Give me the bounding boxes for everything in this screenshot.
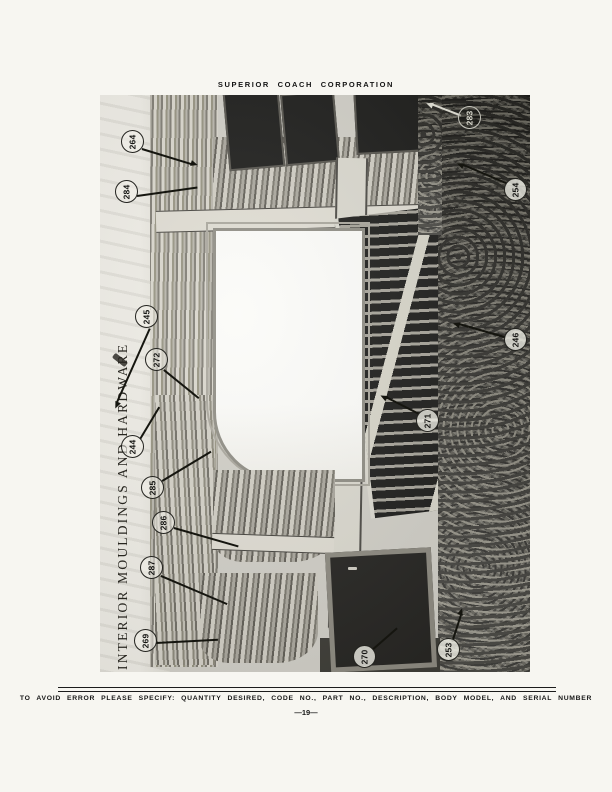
callout-number: 245 [141,309,151,324]
callout-number: 246 [510,332,520,347]
callout-circle: 246 [504,328,527,351]
callout-number: 264 [127,134,137,149]
catalog-photo: INTERIOR MOULDINGS AND HARDWARE 264 284 … [100,95,530,672]
footer-note: TO AVOID ERROR PLEASE SPECIFY: QUANTITY … [0,695,612,702]
callout-circle: 285 [141,476,164,499]
callout-number: 244 [127,439,137,454]
callout-number: 254 [510,182,520,197]
photo-vignette [100,95,530,672]
catalog-page: SUPERIOR COACH CORPORATION INTERIOR MOUL… [0,0,612,792]
callout-number: 271 [422,413,432,428]
callout-circle: 284 [115,180,138,203]
callout-number: 287 [146,560,156,575]
callout-number: 269 [140,633,150,648]
callout-circle: 254 [504,178,527,201]
callout-circle: 269 [134,629,157,652]
callout-number: 270 [359,649,369,664]
page-header-title: SUPERIOR COACH CORPORATION [0,80,612,89]
callout-number: 272 [151,352,161,367]
callout-circle: 286 [152,511,175,534]
callout-circle: 264 [121,130,144,153]
footer-rule [58,687,556,692]
callout-number: 283 [464,110,474,125]
callout-circle: 245 [135,305,158,328]
callout-circle: 283 [458,106,481,129]
callout-circle: 244 [121,435,144,458]
callout-number: 253 [443,642,453,657]
callout-circle: 287 [140,556,163,579]
callout-number: 284 [121,184,131,199]
callout-circle: 271 [416,409,439,432]
callout-number: 285 [147,480,157,495]
callout-circle: 253 [437,638,460,661]
callout-number: 286 [158,515,168,530]
callout-circle: 270 [353,645,376,668]
callout-circle: 272 [145,348,168,371]
page-number: —19— [0,708,612,717]
